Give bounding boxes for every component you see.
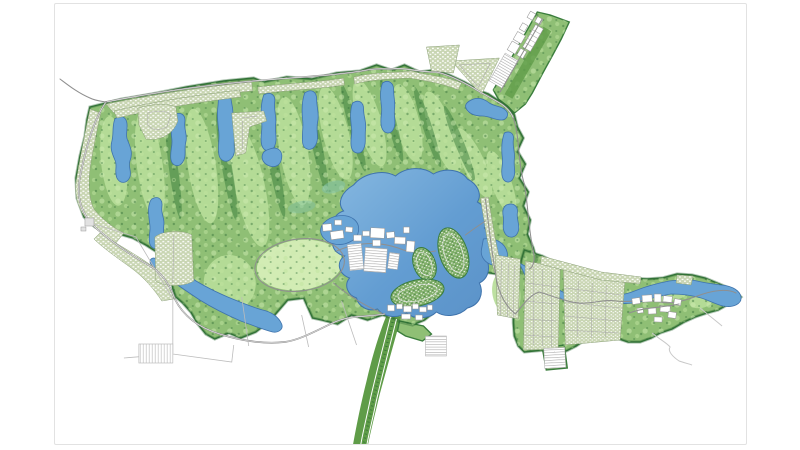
pond (502, 132, 515, 182)
town-building (632, 297, 641, 304)
east-stub-parking-rows (544, 347, 566, 368)
pond (262, 148, 282, 166)
village-building (412, 304, 418, 309)
clubhouse-building (386, 232, 395, 239)
village-building (388, 305, 395, 311)
town-building (654, 294, 661, 302)
village-building (427, 305, 432, 310)
image-canvas (0, 0, 800, 450)
village-building (419, 307, 426, 312)
town-building (642, 295, 652, 303)
parking-lot (387, 252, 399, 269)
parking-lot (364, 247, 388, 272)
clubhouse-building (363, 231, 370, 236)
map-image-frame (54, 3, 747, 445)
pond (351, 101, 366, 153)
clubhouse-building (335, 220, 342, 225)
clubhouse-building (322, 224, 332, 232)
northwest-entry-road (60, 79, 106, 102)
clubhouse-building (406, 241, 415, 253)
gatehouse-building (81, 227, 86, 231)
east-grid-homes-west (523, 261, 560, 350)
parking-lot (347, 243, 364, 270)
gatehouse-building (85, 218, 94, 226)
village-building (401, 314, 410, 319)
village-building (397, 304, 403, 309)
master-plan-map (55, 4, 746, 444)
clubhouse-building (403, 227, 409, 233)
pond (381, 81, 395, 133)
pond (302, 91, 318, 150)
clubhouse-building (330, 230, 344, 240)
village-parking (425, 336, 446, 356)
west-gatehouse (81, 218, 94, 231)
trail-road (652, 333, 692, 365)
clubhouse-building (394, 237, 405, 244)
north-dip-homes (426, 45, 459, 73)
parcel-parking-hatch (139, 344, 173, 363)
east-strip-homes (676, 275, 693, 285)
clubhouse-building (370, 228, 384, 239)
town-building (654, 317, 662, 322)
clubhouse-building (373, 240, 381, 246)
pond (503, 204, 519, 237)
clubhouse-building (354, 235, 362, 241)
village-building (403, 306, 411, 312)
west-column-homes (155, 231, 194, 285)
town-building (663, 296, 673, 303)
town-building (668, 311, 677, 318)
clubhouse-building (345, 227, 352, 232)
village-building (415, 315, 422, 320)
